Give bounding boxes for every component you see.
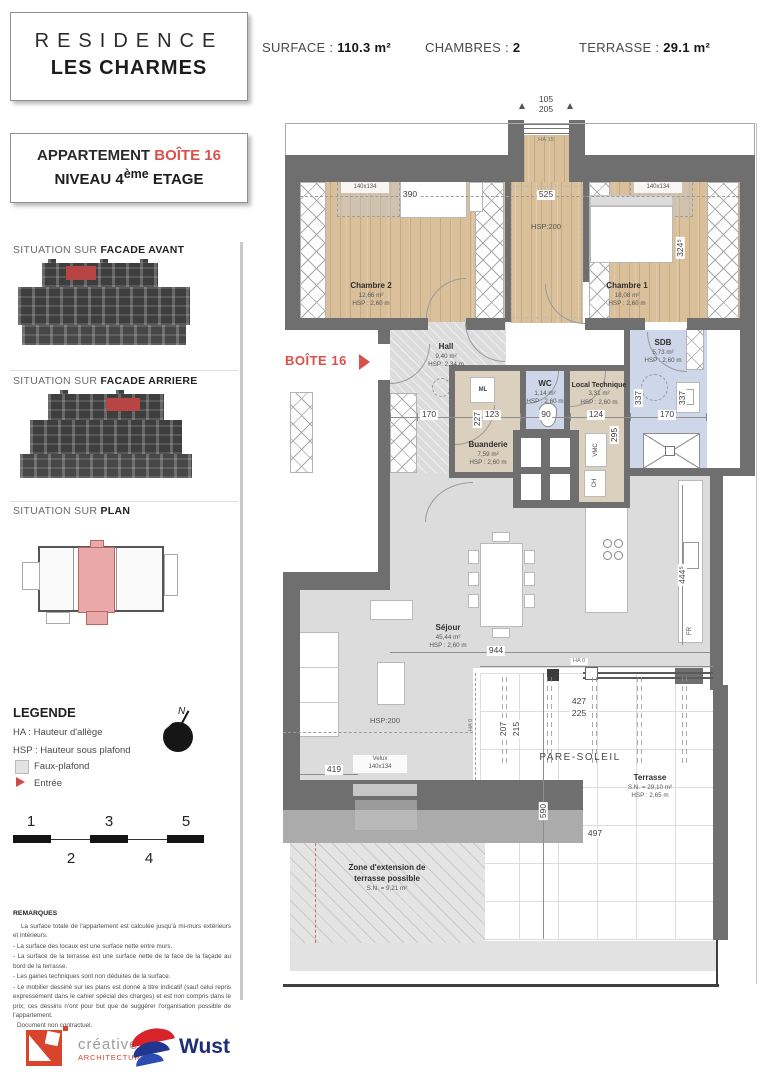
armchair (370, 600, 413, 620)
window-line (524, 133, 569, 134)
zone-line2: terrasse possible (348, 874, 425, 885)
shower-drain (665, 446, 675, 456)
dimension-line (480, 666, 713, 667)
facade-top-floor (42, 263, 158, 287)
dim-390: 390 (401, 190, 419, 200)
zone-extension-label: Zone d'extension de terrasse possible S.… (348, 863, 425, 893)
room-hsp: HSP : 2,60 m (350, 300, 391, 309)
logo-accent-square (63, 1026, 68, 1031)
situation-plan-thumbnail (18, 540, 183, 635)
facade-arriere-image (20, 394, 192, 478)
entree-arrow-icon (16, 777, 25, 787)
chair (524, 594, 535, 608)
situation-bold: PLAN (100, 505, 130, 517)
pare-soleil-label: PARE-SOLEIL (537, 752, 622, 764)
remarques-text: La surface totale de l'appartement est c… (13, 922, 231, 1032)
logo-shape (45, 1031, 60, 1046)
situation-prefix: SITUATION SUR (13, 244, 100, 256)
facade-avant-image (18, 263, 190, 347)
floor-plan-sheet: { "header": { "surface_label": "SURFACE … (0, 0, 763, 1080)
sofa (298, 632, 339, 737)
velux-word: Velux (355, 756, 405, 764)
dimension-arrow-icon (519, 103, 525, 109)
sloped-zone-hatch (707, 182, 739, 321)
terrasse-value: 29.1 m² (663, 40, 710, 55)
shaft-duct (521, 474, 541, 500)
dim-90: 90 (539, 410, 552, 420)
room-area: 7,59 m² (468, 451, 507, 460)
remarques-line: - La surface des locaux est une surface … (13, 942, 231, 951)
wall-segment (585, 155, 755, 182)
compass-wedge (163, 722, 181, 741)
room-area: 12,66 m² (350, 292, 391, 301)
apartment-label: APPARTEMENT (37, 147, 154, 164)
corner-line (716, 940, 718, 984)
dim-170-left: 170 (420, 410, 438, 420)
scale-number-2: 2 (67, 850, 75, 867)
cooktop-burner (614, 551, 623, 560)
room-label-sdb: SDB 5,73 m² HSP : 2,60 m (644, 338, 681, 366)
section-title-facade-avant: SITUATION SUR FACADE AVANT (13, 244, 184, 256)
coffee-table (377, 662, 405, 705)
facade-mid-floors (18, 287, 190, 325)
room-label-chambre1: Chambre 1 18,08 m² HSP : 2,60 m (606, 281, 647, 309)
legende-entree: Entrée (34, 778, 62, 789)
situation-bold: FACADE AVANT (100, 244, 184, 256)
apartment-title-box: APPARTEMENT BOÎTE 16 NIVEAU 4ème ETAGE (10, 133, 248, 203)
room-label-hall: Hall 9,40 m² HSP: 2,34 m (428, 342, 464, 370)
wall-segment (569, 120, 585, 182)
highlighted-unit-bump (86, 611, 108, 625)
legende-title: LEGENDE (13, 705, 76, 720)
remarques-line: - Le mobilier dessiné sur les plans est … (13, 983, 231, 1021)
sdb-corner-hatch (686, 328, 704, 370)
room-label-terrasse: Terrasse S.N. = 29,10 m² HSP : 2,65 m (628, 773, 672, 801)
room-name: Chambre 2 (350, 281, 391, 292)
room-name: SDB (644, 338, 681, 349)
window-line (524, 124, 569, 125)
velux-label-bottom: Velux 140x134 (353, 755, 407, 773)
level-sup: ème (124, 167, 149, 181)
wall-segment (710, 473, 723, 690)
sejour-window (353, 784, 417, 796)
room-name: Chambre 1 (606, 281, 647, 292)
apartment-line: APPARTEMENT BOÎTE 16 (11, 147, 247, 164)
room-label-buanderie: Buanderie 7,59 m² HSP : 2,60 m (468, 440, 507, 468)
wall-segment (570, 502, 630, 508)
outline (754, 123, 755, 155)
facade-ground-floor (22, 325, 186, 345)
dim-ha15: HA 15 (536, 137, 556, 144)
cooktop-burner (603, 551, 612, 560)
corridor-ceiling-zone (511, 186, 582, 318)
room-label-sejour: Séjour 45,44 m² HSP : 2,60 m (429, 623, 466, 651)
room-area: 45,44 m² (429, 634, 466, 643)
room-label-wc: WC 1,14 m² HSP : 2,60 m (526, 379, 563, 407)
room-hsp: HSP : 2,65 m (628, 792, 672, 801)
dim-123: 123 (483, 410, 501, 420)
room-name: WC (526, 379, 563, 390)
dim-ha0-vertical: HA 0 (469, 717, 475, 734)
dim-337-a: 337 (634, 389, 643, 407)
highlighted-unit (78, 547, 115, 613)
room-area: 1,14 m² (526, 390, 563, 399)
dim-hsp200-top: HSP:200 (529, 223, 563, 232)
dim-337-b: 337 (678, 389, 687, 407)
velux-roof-patch (355, 800, 417, 830)
creative-architecture-logo-icon (26, 1030, 62, 1066)
dim-324-5: 324⁵ (676, 237, 685, 259)
dim-207: 207 (499, 720, 508, 738)
scale-number-3: 3 (105, 813, 113, 830)
wall-segment (508, 120, 524, 182)
dim-944: 944 (487, 646, 505, 656)
facade-highlight-unit (106, 398, 140, 411)
scale-bar-segment (13, 835, 51, 843)
room-area: 3,31 m² (572, 390, 627, 399)
plan-wing-left (22, 562, 40, 590)
facade-ground-floor (20, 454, 192, 478)
scale-bar-segment (90, 835, 128, 843)
ceiling-spot (641, 374, 668, 401)
room-name: Hall (428, 342, 464, 353)
room-hsp: HSP : 2,60 m (526, 398, 563, 407)
dim-295: 295 (610, 426, 619, 444)
sofa-cushion-line (298, 702, 339, 703)
chair (524, 550, 535, 564)
situation-prefix: SITUATION SUR (13, 375, 100, 387)
wall-segment (740, 155, 755, 475)
wust-logo-name: Wust (179, 1035, 230, 1059)
dim-225: 225 (570, 709, 588, 719)
room-hsp: HSP : 2,60 m (429, 642, 466, 651)
dimension-line (390, 652, 710, 653)
shaft-duct (550, 438, 570, 467)
dimension-tick (706, 413, 707, 421)
chair (468, 594, 479, 608)
scale-number-5: 5 (182, 813, 190, 830)
zone-extension-limit (315, 843, 316, 943)
wall-segment (285, 155, 300, 330)
chair (468, 550, 479, 564)
wall-segment (378, 330, 390, 344)
room-area: 5,73 m² (644, 349, 681, 358)
facade-mid-floors (30, 420, 182, 454)
room-label-local-technique: Local Technique 3,31 m² HSP : 2,60 m (572, 381, 627, 407)
sheet-right-border (756, 123, 757, 984)
chair (492, 532, 510, 542)
chair (492, 628, 510, 638)
divider-rule (10, 501, 238, 502)
surface-label: SURFACE : (262, 40, 333, 55)
room-area: S.N. = 29,10 m² (628, 784, 672, 793)
room-hsp: HSP: 2,34 m (428, 361, 464, 370)
wust-logo-icon (130, 1028, 176, 1066)
wall-segment (624, 468, 755, 476)
wall-segment (283, 572, 390, 590)
dimension-tick (417, 413, 418, 421)
exterior-shaft-hatch (290, 392, 313, 473)
section-title-plan: SITUATION SUR PLAN (13, 505, 130, 517)
section-title-facade-arriere: SITUATION SUR FACADE ARRIERE (13, 375, 198, 387)
ch-label: CH (592, 479, 598, 488)
hsp-limit-dashed (283, 732, 473, 733)
terrasse-stat: TERRASSE : 29.1 m² (579, 40, 710, 55)
room-area: 18,08 m² (606, 292, 647, 301)
residence-name-line1: RESIDENCE (11, 30, 247, 53)
scale-number-4: 4 (145, 850, 153, 867)
scale-number-1: 1 (27, 813, 35, 830)
sheet-bottom-line (283, 984, 719, 987)
faux-plafond-swatch (15, 760, 29, 774)
dim-hsp200-bottom: HSP:200 (368, 717, 402, 726)
dimension-tick (520, 413, 521, 421)
wall-segment (713, 685, 728, 940)
velux-size: 140x134 (636, 184, 680, 192)
chambre1-bed (590, 206, 673, 263)
outline (285, 123, 755, 124)
wall-segment (285, 318, 428, 330)
room-hsp: HSP : 2,60 m (644, 357, 681, 366)
dim-170-right: 170 (658, 410, 676, 420)
level-suffix: ETAGE (149, 171, 204, 188)
level-line: NIVEAU 4ème ETAGE (11, 167, 247, 188)
dim-ha0-horizontal: HA 0 (571, 658, 588, 665)
wall-segment (283, 590, 300, 800)
dim-227: 227 (473, 410, 482, 428)
sofa-cushion-line (298, 667, 339, 668)
apartment-number: BOÎTE 16 (154, 147, 221, 164)
remarques-line: - La surface de la terrasse est une surf… (13, 952, 231, 971)
boite16-marker-label: BOÎTE 16 (285, 353, 347, 368)
velux-size: 140x134 (343, 184, 387, 192)
room-name: Séjour (429, 623, 466, 634)
vmc-label: VMC (593, 443, 599, 456)
wall-segment (585, 318, 645, 330)
zone-line1: Zone d'extension de (348, 863, 425, 874)
terrasse-label: TERRASSE : (579, 40, 659, 55)
sidebar-divider (240, 242, 243, 1000)
legende-faux-plafond: Faux-plafond (34, 761, 89, 772)
fridge-label: FR (687, 627, 693, 635)
situation-prefix: SITUATION SUR (13, 505, 100, 517)
room-hsp: HSP : 2,60 m (606, 300, 647, 309)
chambres-value: 2 (513, 40, 521, 55)
plan-wing-bottom (46, 612, 70, 624)
outline (285, 123, 286, 155)
residence-title-box: RESIDENCE LES CHARMES (10, 12, 248, 101)
terrace-boundary-dashed (475, 673, 476, 780)
room-name: Terrasse (628, 773, 672, 784)
dining-table (480, 543, 523, 627)
dim-590: 590 (539, 802, 548, 820)
surface-value: 110.3 m² (337, 40, 391, 55)
dimension-tick (570, 413, 571, 421)
level-prefix: NIVEAU 4 (55, 171, 124, 188)
dim-205: 205 (539, 105, 553, 115)
dim-427: 427 (570, 697, 588, 707)
room-label-chambre2: Chambre 2 12,66 m² HSP : 2,60 m (350, 281, 391, 309)
legende-ha: HA : Hauteur d'allège (13, 727, 102, 738)
chambres-label: CHAMBRES : (425, 40, 509, 55)
floor-plan: Velux 140x134 Velux 140x134 ML VMC CH FR (283, 95, 760, 1000)
legende-hsp: HSP : Hauteur sous plafond (13, 745, 131, 756)
shaft-duct (521, 438, 541, 467)
dim-444-5: 444⁵ (678, 564, 687, 586)
dimension-tick (390, 413, 391, 421)
logo-shape (52, 1046, 60, 1064)
hall-closet-hatch (390, 393, 417, 473)
window-line (524, 128, 569, 129)
chair (524, 572, 535, 586)
residence-name-line2: LES CHARMES (11, 57, 247, 80)
entree-arrow-icon (359, 354, 370, 370)
room-name: Buanderie (468, 440, 507, 451)
sloped-zone-hatch (300, 182, 326, 321)
wall-segment (378, 380, 390, 572)
cooktop-burner (603, 539, 612, 548)
dim-215: 215 (512, 720, 521, 738)
wall-segment (285, 155, 508, 182)
dim-525: 525 (537, 190, 555, 200)
wall-segment (687, 318, 755, 330)
cooktop-burner (614, 539, 623, 548)
dim-497: 497 (586, 829, 604, 839)
terrace-glass-door (583, 672, 713, 674)
dimension-arrow-icon (567, 103, 573, 109)
zone-area: S.N. = 9,21 m² (348, 885, 425, 894)
dim-419: 419 (325, 765, 343, 775)
chambres-stat: CHAMBRES : 2 (425, 40, 520, 55)
remarques-line: - Les gaines techniques sont non déduite… (13, 972, 231, 981)
situation-bold: FACADE ARRIERE (100, 375, 197, 387)
north-compass-icon (163, 722, 193, 752)
remarques-line: La surface totale de l'appartement est c… (13, 922, 231, 941)
room-hsp: HSP : 2,60 m (572, 399, 627, 408)
chair (468, 572, 479, 586)
divider-rule (10, 370, 238, 371)
shaft-duct (550, 474, 570, 500)
plan-inner-line (116, 548, 117, 610)
wall-segment (583, 182, 589, 282)
dim-124: 124 (587, 410, 605, 420)
scale-bar-segment (167, 835, 204, 843)
chambre2-shelf (469, 182, 483, 212)
dimension-105-205: 105 205 (537, 95, 555, 115)
room-hsp: HSP : 2,60 m (468, 459, 507, 468)
room-area: 9,40 m² (428, 353, 464, 362)
dimension-tick (630, 413, 631, 421)
washing-machine-label: ML (479, 387, 488, 393)
surface-stat: SURFACE : 110.3 m² (262, 40, 391, 55)
facade-highlight-unit (66, 266, 96, 280)
velux-size: 140x134 (355, 764, 405, 772)
plan-inner-line (73, 548, 74, 610)
room-name: Local Technique (572, 381, 627, 390)
plan-wing-right (164, 554, 178, 596)
lower-gray-strip (290, 941, 716, 971)
remarques-title: REMARQUES (13, 910, 57, 917)
